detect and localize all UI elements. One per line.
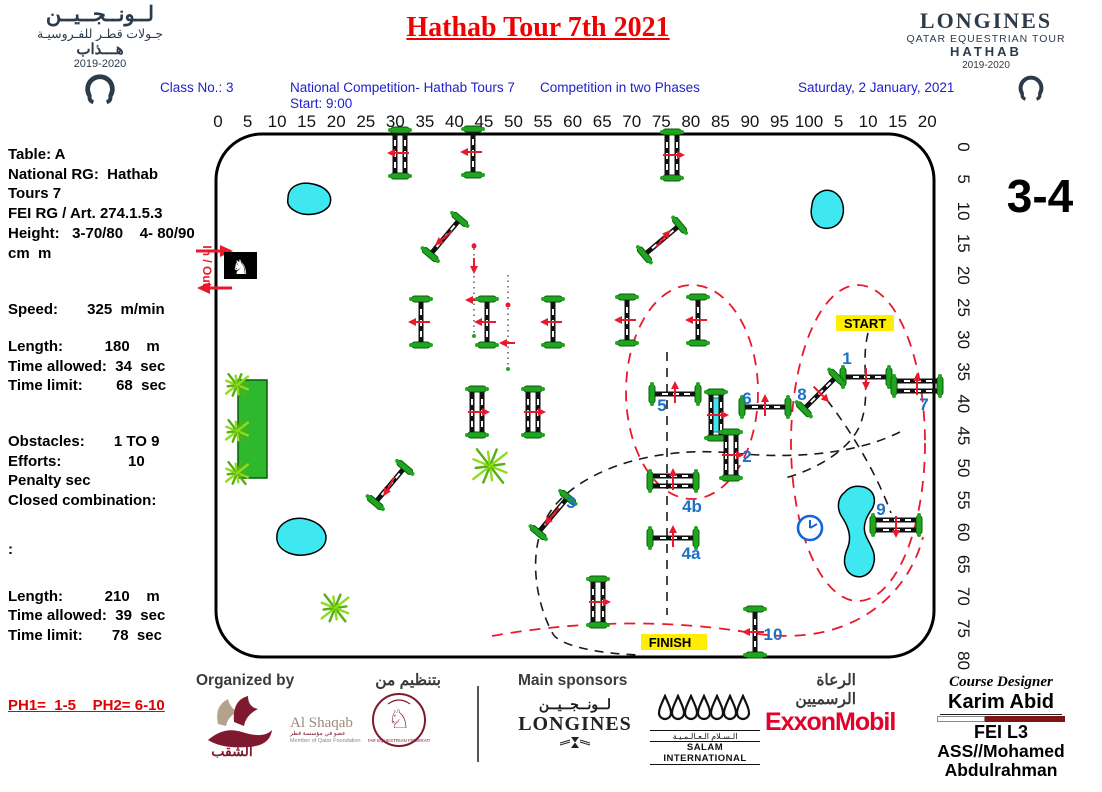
obstacle-number: 7 xyxy=(919,395,928,414)
info-line: Length: 210 m xyxy=(8,587,208,607)
horse-rider-icon: ♞ xyxy=(232,257,250,279)
top-ruler-label: 90 xyxy=(740,112,759,131)
designer-assistant2: Abdulrahman xyxy=(905,761,1097,780)
right-ruler-label: 10 xyxy=(954,202,973,221)
right-ruler-label: 20 xyxy=(954,266,973,285)
top-ruler-label: 60 xyxy=(563,112,582,131)
longines-footer-logo: لــونــجــيــن LONGINES xyxy=(512,696,638,754)
info-line: Tours 7 xyxy=(8,184,208,204)
top-ruler-label: 85 xyxy=(711,112,730,131)
info-line: Time allowed: 39 sec xyxy=(8,606,208,626)
info-line: cm m xyxy=(8,244,208,264)
horseshoe-icon xyxy=(1014,72,1048,104)
finish-marker: FINISH xyxy=(641,634,707,650)
top-ruler-label: 70 xyxy=(622,112,641,131)
right-ruler-label: 15 xyxy=(954,234,973,253)
course-designer-heading: Course Designer xyxy=(905,674,1097,691)
obstacle-number: 4a xyxy=(682,544,701,563)
top-ruler-label: 65 xyxy=(593,112,612,131)
top-ruler-label: 50 xyxy=(504,112,523,131)
footer-divider xyxy=(477,686,479,762)
obstacle-number: 1 xyxy=(842,349,851,368)
sponsors-arabic-heading: الرعاة الرسميين xyxy=(766,671,856,709)
right-ruler-label: 60 xyxy=(954,523,973,542)
top-ruler-label: 0 xyxy=(213,112,222,131)
top-ruler-label: 10 xyxy=(859,112,878,131)
designer-assistant: ASS//Mohamed xyxy=(905,742,1097,761)
winged-hourglass-icon xyxy=(560,736,590,749)
top-ruler-label: 5 xyxy=(834,112,843,131)
course-designer-box: Course Designer Karim Abid FEI L3 ASS//M… xyxy=(905,674,1097,780)
right-ruler-label: 5 xyxy=(954,174,973,183)
right-ruler-label: 65 xyxy=(954,555,973,574)
right-ruler-label: 25 xyxy=(954,298,973,317)
right-ruler-label: 70 xyxy=(954,587,973,606)
logo-season: 2019-2020 xyxy=(880,60,1092,72)
organized-by-arabic: بتنظيم من xyxy=(366,671,441,690)
obstacle-number: 3 xyxy=(566,493,575,512)
al-shaqab-name: Al Shaqab xyxy=(290,716,361,731)
al-shaqab-subtitle: Member of Qatar Foundation xyxy=(290,738,361,744)
course-info-panel: Table: ANational RG: HathabTours 7FEI RG… xyxy=(8,145,208,646)
salam-international-logo: الـسـلام الـعـالـمـيـة SALAM INTERNATION… xyxy=(650,694,760,765)
obstacle-number: 4b xyxy=(682,497,702,516)
right-ruler-label: 45 xyxy=(954,426,973,445)
clock-icon xyxy=(798,516,822,540)
qef-horse-icon: ♘ xyxy=(387,704,410,734)
logo-arabic-line1: لــونــجــيــن xyxy=(10,4,190,26)
al-shaqab-sub-arabic: عضو في مؤسسة قطر xyxy=(290,731,361,738)
top-ruler-label: 5 xyxy=(243,112,252,131)
exxonmobil-logo: ExxonMobil xyxy=(765,708,895,737)
info-line: Speed: 325 m/min xyxy=(8,300,208,320)
info-line: Closed combination: xyxy=(8,491,208,511)
obstacle-number: 5 xyxy=(657,396,666,415)
right-ruler-label: 0 xyxy=(954,142,973,151)
right-ruler-label: 40 xyxy=(954,394,973,413)
info-line: Table: A xyxy=(8,145,208,165)
top-ruler-label: 20 xyxy=(918,112,937,131)
info-line: Efforts: 10 xyxy=(8,452,208,472)
top-ruler-label: 30 xyxy=(386,112,405,131)
info-line: National RG: Hathab xyxy=(8,165,208,185)
right-ruler: 05101520253035404550556065707580 xyxy=(954,142,973,670)
top-ruler-label: 80 xyxy=(681,112,700,131)
top-ruler-label: 20 xyxy=(327,112,346,131)
top-ruler-label: 100 xyxy=(795,112,823,131)
info-line: FEI RG / Art. 274.1.5.3 xyxy=(8,204,208,224)
obstacle-number: 2 xyxy=(742,447,751,466)
top-ruler-label: 55 xyxy=(534,112,553,131)
salam-arabic: الـسـلام الـعـالـمـيـة xyxy=(650,730,760,741)
qef-logo: ♘ QATAR EQUESTRIAN FEDERATION xyxy=(368,690,430,761)
top-ruler-label: 35 xyxy=(415,112,434,131)
obstacle-number: 6 xyxy=(742,389,751,408)
page-title: Hathab Tour 7th 2021 xyxy=(368,12,708,44)
salam-name: SALAM INTERNATIONAL xyxy=(650,741,760,765)
info-line: Obstacles: 1 TO 9 xyxy=(8,432,208,452)
logo-arabic-line3: هـــذاب xyxy=(10,42,190,58)
course-designer-name: Karim Abid xyxy=(940,691,1062,715)
qef-emblem-icon: ♘ QATAR EQUESTRIAN FEDERATION xyxy=(368,690,430,756)
competition-format: Competition in two Phases xyxy=(540,80,700,95)
qef-name: QATAR EQUESTRIAN FEDERATION xyxy=(368,738,430,743)
event-date: Saturday, 2 January, 2021 xyxy=(798,80,954,95)
pond xyxy=(811,190,843,228)
hedge-wall xyxy=(238,380,267,478)
al-shaqab-arabic: الشقب xyxy=(211,743,252,758)
course-map: 1234a4b5678910 START FINISH In / Out ♞ 0… xyxy=(190,108,1102,670)
organized-by-heading: Organized by xyxy=(196,672,294,690)
pond xyxy=(288,183,331,214)
designer-level: FEI L3 xyxy=(905,723,1097,742)
al-shaqab-horses-icon: الشقب xyxy=(202,694,286,758)
top-ruler-label: 15 xyxy=(888,112,907,131)
logo-arabic-line2: جـولات قطـر للفـروسيـة xyxy=(10,28,190,41)
info-line: Time limit: 78 sec xyxy=(8,626,208,646)
right-ruler-label: 75 xyxy=(954,619,973,638)
course-sheet-page: { "colors":{"title_red":"#f00000","heade… xyxy=(0,0,1102,792)
pond xyxy=(277,518,326,555)
right-ruler-label: 30 xyxy=(954,330,973,349)
top-ruler: 0510152025303540455055606570758085909510… xyxy=(213,112,936,131)
longines-hathab-arabic-logo: لــونــجــيــن جـولات قطـر للفـروسيـة هـ… xyxy=(10,4,190,113)
info-line: Time allowed: 34 sec xyxy=(8,357,208,377)
top-ruler-label: 15 xyxy=(297,112,316,131)
obstacle-number: 9 xyxy=(876,500,885,519)
info-line: Height: 3-70/80 4- 80/90 xyxy=(8,224,208,244)
horseshoe-icon xyxy=(80,70,120,108)
info-line: : xyxy=(8,540,208,560)
competition-name: National Competition- Hathab Tours 7 xyxy=(290,80,515,95)
right-ruler-label: 50 xyxy=(954,459,973,478)
top-ruler-label: 10 xyxy=(268,112,287,131)
obstacle-number: 8 xyxy=(797,385,806,404)
finish-label: FINISH xyxy=(649,635,692,650)
logo-season: 2019-2020 xyxy=(10,59,190,71)
salam-droplets-icon xyxy=(657,694,753,724)
longines-name: LONGINES xyxy=(512,713,638,736)
al-shaqab-logo: الشقب Al Shaqab عضو في مؤسسة قطر Member … xyxy=(202,694,367,758)
top-ruler-label: 25 xyxy=(356,112,375,131)
start-marker: START xyxy=(836,315,894,331)
longines-arabic: لــونــجــيــن xyxy=(512,696,638,713)
phase-note: PH1= 1-5 PH2= 6-10 xyxy=(8,697,165,714)
sheet-number: 3-4 xyxy=(1007,170,1074,222)
obstacle-number: 10 xyxy=(764,625,783,644)
top-ruler-label: 40 xyxy=(445,112,464,131)
top-ruler-label: 45 xyxy=(474,112,493,131)
right-ruler-label: 35 xyxy=(954,362,973,381)
right-ruler-label: 80 xyxy=(954,651,973,670)
info-line: Length: 180 m xyxy=(8,337,208,357)
logo-hathab-line: HATHAB xyxy=(880,45,1092,60)
info-line: Penalty sec xyxy=(8,471,208,491)
start-label: START xyxy=(844,316,886,331)
top-ruler-label: 75 xyxy=(652,112,671,131)
top-ruler-label: 95 xyxy=(770,112,789,131)
class-number: Class No.: 3 xyxy=(160,80,234,95)
main-sponsors-heading: Main sponsors xyxy=(518,672,627,690)
logo-brand: LONGINES xyxy=(880,8,1092,33)
info-line: Time limit: 68 sec xyxy=(8,376,208,396)
right-ruler-label: 55 xyxy=(954,491,973,510)
